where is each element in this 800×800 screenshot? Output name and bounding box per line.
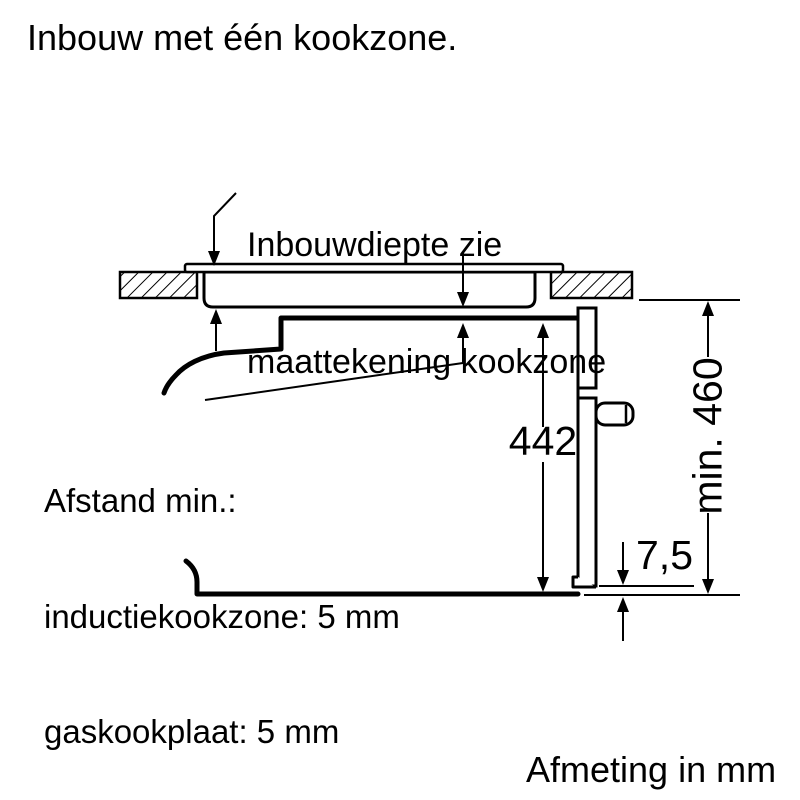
arrow-down-icon [702, 579, 714, 594]
installation-depth-up-arrow [210, 309, 222, 351]
callout-line-2: maattekening kookzone [247, 343, 606, 382]
callout-line-1: Inbouwdiepte zie [247, 226, 606, 265]
arrow-up-icon [702, 301, 714, 316]
dimension-442-value: 442 [509, 421, 577, 462]
dimension-7-5-value: 7,5 [636, 535, 693, 576]
distance-note: Afstand min.: inductiekookzone: 5 mm gas… [44, 405, 453, 800]
note-line-2: inductiekookzone: 5 mm [44, 598, 453, 637]
installation-diagram: Inbouw met één kookzone. Inbouwdiepte zi… [0, 0, 800, 800]
dimension-min-460-value: min. 460 [688, 357, 729, 514]
arrow-up-icon [210, 309, 222, 324]
units-note: Afmeting in mm [526, 752, 776, 788]
note-line-1: Afstand min.: [44, 482, 453, 521]
countertop-left-section [120, 272, 197, 298]
arrow-down-icon [537, 577, 549, 592]
arrow-up-icon [617, 597, 629, 612]
note-line-3: gaskookplaat: 5 mm [44, 713, 453, 752]
callout-leader-arrow [208, 193, 236, 266]
page-title: Inbouw met één kookzone. [27, 20, 457, 56]
arrow-down-icon [617, 570, 629, 585]
